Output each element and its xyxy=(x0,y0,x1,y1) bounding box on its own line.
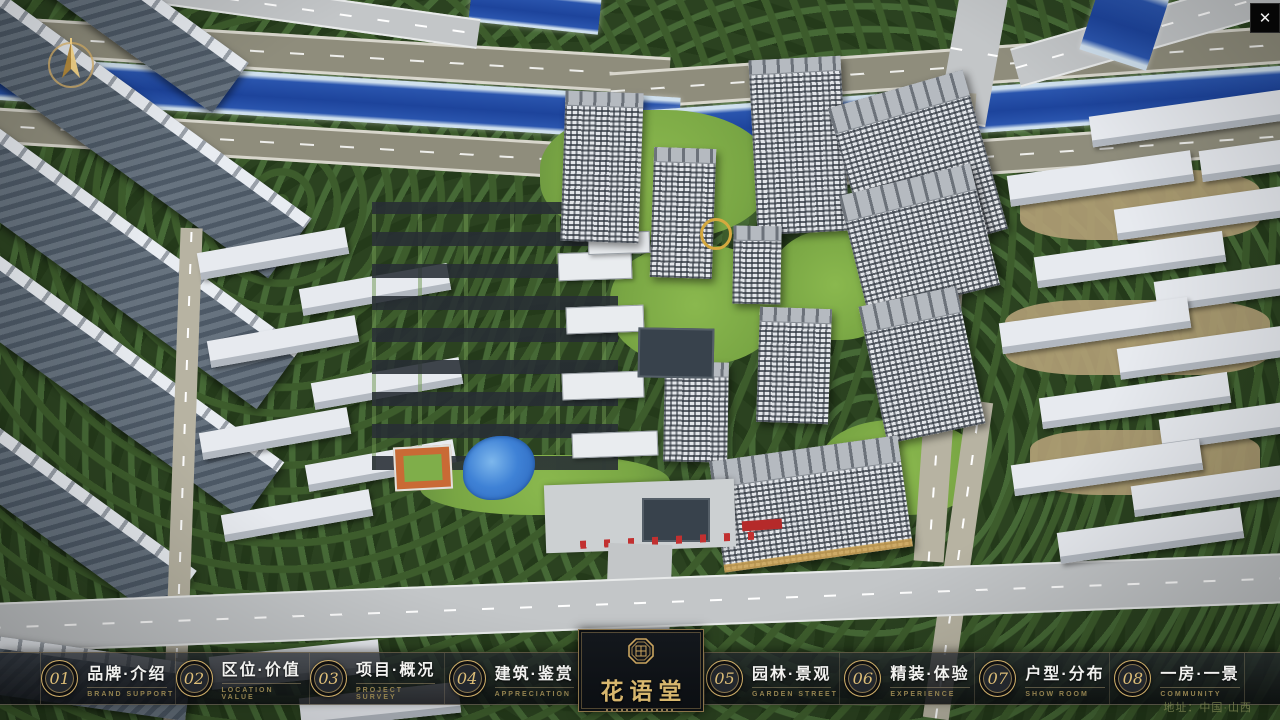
mid-rise xyxy=(558,251,633,282)
nav-item-garden-landscape[interactable]: 05 园林·景观 GARDEN STREET xyxy=(704,653,839,704)
nav-label-en: EXPERIENCE xyxy=(890,691,955,698)
nav-item-architecture[interactable]: 04 建筑·鉴赏 APPRECIATION xyxy=(445,653,580,704)
nav-badge-05: 05 xyxy=(706,660,743,697)
nav-item-brand-intro[interactable]: 01 品牌·介绍 BRAND SUPPORT xyxy=(41,653,176,704)
nav-item-location-value[interactable]: 02 区位·价值 LOCATION VALUE xyxy=(176,653,311,704)
nav-label-zh: 一房·一景 xyxy=(1160,660,1239,688)
clubhouse xyxy=(638,327,715,378)
mid-rise xyxy=(572,431,659,459)
logo-subtitle-rule xyxy=(606,709,676,711)
nav-item-project-survey[interactable]: 03 项目·概况 PROJECT SURVEY xyxy=(310,653,445,704)
nav-item-unit-distribution[interactable]: 07 户型·分布 SHOW ROOM xyxy=(974,653,1109,704)
nav-badge-08: 08 xyxy=(1114,660,1151,697)
logo-seal-icon xyxy=(627,637,655,670)
site-plan-3d-view[interactable] xyxy=(0,0,1280,720)
nav-label-zh: 建筑·鉴赏 xyxy=(495,660,574,688)
nav-badge-07: 07 xyxy=(979,660,1016,697)
sales-presentation-screen: ✕ 01 品牌·介绍 BRAND SUPPORT 02 区位·价值 LOCATI… xyxy=(0,0,1280,720)
river-branch xyxy=(468,0,601,35)
mid-rise xyxy=(566,305,645,335)
nav-group-left: 01 品牌·介绍 BRAND SUPPORT 02 区位·价值 LOCATION… xyxy=(40,653,579,704)
close-button[interactable]: ✕ xyxy=(1250,3,1280,33)
residential-tower xyxy=(560,91,643,244)
nav-group-right: 05 园林·景观 GARDEN STREET 06 精装·体验 EXPERIEN… xyxy=(704,653,1245,704)
project-logo-panel[interactable]: 花语堂 xyxy=(578,629,704,712)
nav-badge-01: 01 xyxy=(41,660,78,697)
residential-tower xyxy=(748,56,849,236)
nav-badge-02: 02 xyxy=(176,660,213,697)
nav-label-zh: 项目·概况 xyxy=(356,656,435,684)
compass-icon xyxy=(44,36,98,90)
nav-badge-04: 04 xyxy=(449,660,486,697)
nav-item-decoration-experience[interactable]: 06 精装·体验 EXPERIENCE xyxy=(839,653,974,704)
project-address: 地址：中国·山西 xyxy=(1163,699,1252,715)
nav-label-zh: 品牌·介绍 xyxy=(87,660,166,688)
nav-label-en: PROJECT SURVEY xyxy=(356,687,444,701)
sports-court xyxy=(393,445,453,492)
nav-label-en: BRAND SUPPORT xyxy=(87,691,174,698)
close-icon: ✕ xyxy=(1259,9,1272,27)
nav-label-en: COMMUNITY xyxy=(1160,691,1221,698)
nav-label-en: APPRECIATION xyxy=(495,691,571,698)
nav-label-en: SHOW ROOM xyxy=(1025,691,1089,698)
residential-tower xyxy=(650,147,716,279)
residential-tower xyxy=(756,307,832,424)
courtyard-houses xyxy=(372,202,618,470)
project-logo-title: 花语堂 xyxy=(595,672,688,706)
nav-item-room-view[interactable]: 08 一房·一景 COMMUNITY xyxy=(1109,653,1244,704)
nav-label-zh: 区位·价值 xyxy=(222,656,301,684)
nav-label-en: GARDEN STREET xyxy=(752,691,838,698)
residential-tower xyxy=(709,435,913,572)
nav-label-zh: 园林·景观 xyxy=(752,660,831,688)
landscape-feature xyxy=(700,218,732,250)
low-rise-row xyxy=(199,407,351,460)
nav-badge-06: 06 xyxy=(844,660,881,697)
nav-label-en: LOCATION VALUE xyxy=(222,687,310,701)
nav-badge-03: 03 xyxy=(310,660,347,697)
nav-label-zh: 户型·分布 xyxy=(1025,660,1104,688)
mid-rise xyxy=(562,371,645,401)
nav-label-zh: 精装·体验 xyxy=(890,660,969,688)
residential-tower xyxy=(732,226,781,305)
